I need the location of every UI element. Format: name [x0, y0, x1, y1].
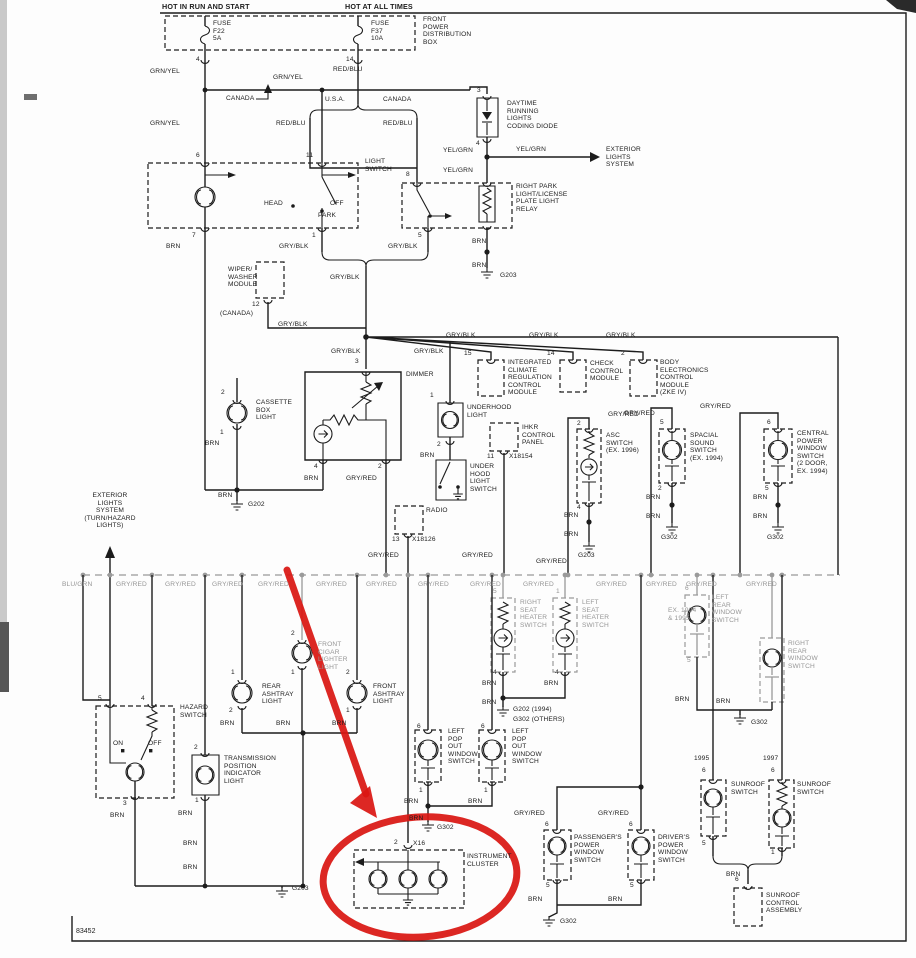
ground-g302-others: G302 (OTHERS): [513, 716, 565, 724]
bus-gry-red-6: GRY/RED: [366, 581, 397, 589]
pin-2-underhood: 2: [437, 441, 441, 449]
label-wiper-washer-module: WIPER/ WASHER MODULE: [228, 266, 258, 289]
ground-g203-bottom: G203: [292, 885, 309, 893]
wire-brn-right-seat: BRN: [482, 680, 496, 688]
pin-1-cigar: 1: [291, 669, 295, 677]
wire-brn-mid-1: BRN: [183, 840, 197, 848]
wire-gry-red-driver: GRY/RED: [598, 810, 629, 818]
wire-brn-seat: BRN: [482, 699, 496, 707]
label-icr-module: INTEGRATED CLIMATE REGULATION CONTROL MO…: [508, 359, 552, 397]
note-ex-1994-1995: EX. 1994 & 1995: [668, 607, 696, 622]
label-check-control-module: CHECK CONTROL MODULE: [590, 360, 623, 383]
wire-brn-left-pop: BRN: [404, 798, 418, 806]
pin-2-x16: 2: [394, 839, 398, 847]
pin-6-sunroof-control: 6: [735, 876, 739, 884]
label-passenger-window-switch: PASSENGER'S POWER WINDOW SWITCH: [574, 834, 622, 864]
label-left-rear-window-switch: LEFT REAR WINDOW SWITCH: [712, 594, 742, 624]
wire-brn-spacial-1: BRN: [646, 494, 660, 502]
pin-11-light-switch: 11: [306, 152, 313, 160]
connector-x18126: X18126: [412, 536, 436, 544]
wire-gry-blk-4: GRY/BLK: [331, 348, 361, 356]
wire-gry-red-spacial: GRY/RED: [624, 410, 655, 418]
pin-11-ihkr: 11: [487, 453, 494, 461]
bus-gry-red-13: GRY/RED: [746, 581, 777, 589]
pin-8-relay: 8: [406, 171, 410, 179]
pin-6-sunroof-1: 6: [702, 767, 706, 775]
wire-brn-left-rear: BRN: [675, 696, 689, 704]
pin-6-sunroof-2: 6: [771, 767, 775, 775]
year-1995: 1995: [694, 755, 709, 763]
bus-gry-red-3: GRY/RED: [212, 581, 243, 589]
pos-on-hazard: ON: [113, 740, 123, 748]
wire-gry-blk-icr: GRY/BLK: [446, 332, 476, 340]
bus-gry-red-10: GRY/RED: [596, 581, 627, 589]
wire-brn-dimmer: BRN: [304, 475, 318, 483]
label-hazard-switch: HAZARD SWITCH: [180, 704, 208, 719]
wire-grn-yel-2: GRN/YEL: [273, 74, 303, 82]
connector-x16: X16: [413, 840, 425, 848]
wire-gry-blk-trunk: GRY/BLK: [330, 274, 360, 282]
label-radio: RADIO: [426, 507, 448, 515]
pin-1-trans: 1: [195, 797, 199, 805]
label-right-park-relay: RIGHT PARK LIGHT/LICENSE PLATE LIGHT REL…: [516, 183, 567, 213]
label-front-ashtray-light: FRONT ASHTRAY LIGHT: [373, 683, 405, 706]
pin-2-spacial: 2: [658, 485, 662, 493]
label-sunroof-switch-1: SUNROOF SWITCH: [731, 781, 765, 796]
ground-g202-seat: G202 (1994): [513, 706, 552, 714]
bus-gry-red-2: GRY/RED: [165, 581, 196, 589]
ground-g302-rear: G302: [751, 719, 768, 727]
pin-13-radio: 13: [392, 536, 400, 544]
wire-gry-red-1: GRY/RED: [368, 552, 399, 560]
wire-brn-spacial-2: BRN: [646, 513, 660, 521]
pin-1-cassette: 1: [220, 429, 224, 437]
wire-yel-grn-3: YEL/GRN: [443, 167, 473, 175]
wire-brn-ashtray-2: BRN: [276, 720, 290, 728]
pin-4-right-seat: 4: [493, 669, 497, 677]
pin-5-central: 5: [765, 485, 769, 493]
wiring-diagram-page: HOT IN RUN AND STARTHOT AT ALL TIMESFUSE…: [0, 0, 916, 958]
pin-2-dimmer: 2: [378, 463, 382, 471]
label-underhood-light-switch: UNDER HOOD LIGHT SWITCH: [470, 463, 497, 493]
wire-gry-red-central: GRY/RED: [700, 403, 731, 411]
label-instrument-cluster: INSTRUMENT CLUSTER: [467, 853, 512, 868]
pin-1-front-ashtray: 1: [346, 707, 350, 715]
wire-gry-red-dimmer: GRY/RED: [346, 475, 377, 483]
wire-brn-hazard: BRN: [110, 812, 124, 820]
pin-5-spacial: 5: [660, 419, 664, 427]
label-body-electronics-module: BODY ELECTRONICS CONTROL MODULE (ZKE IV): [660, 359, 709, 397]
bus-gry-red-4: GRY/RED: [258, 581, 289, 589]
ground-g302-central: G302: [767, 534, 784, 542]
pin-4-hazard: 4: [141, 695, 145, 703]
wire-brn-light-switch: BRN: [166, 243, 180, 251]
label-rear-ashtray-light: REAR ASHTRAY LIGHT: [262, 683, 294, 706]
pin-6-right-pop: 6: [481, 723, 485, 731]
pin-2-body: 2: [621, 350, 625, 358]
region-usa: U.S.A.: [325, 96, 345, 104]
pin-4-diode: 4: [476, 140, 480, 148]
bus-gry-red-5: GRY/RED: [316, 581, 347, 589]
label-right-seat-heater: RIGHT SEAT HEATER SWITCH: [520, 599, 547, 629]
pin-1-left-pop: 1: [419, 787, 423, 795]
pin-3-dimmer: 3: [355, 358, 359, 366]
region-canada: CANADA: [383, 96, 411, 104]
wire-brn-relay-1: BRN: [472, 238, 486, 246]
wire-gry-red-2: GRY/RED: [462, 552, 493, 560]
bus-blu-grn: BLU/GRN: [62, 581, 92, 589]
label-fuse-f22: FUSE F22 5A: [213, 20, 231, 43]
pos-off: OFF: [330, 200, 344, 208]
pin-4-dimmer: 4: [314, 463, 318, 471]
label-sunroof-switch-2: SUNROOF SWITCH: [797, 781, 831, 796]
label-hot-at-all-times: HOT AT ALL TIMES: [345, 3, 413, 11]
label-fuse-f37: FUSE F37 10A: [371, 20, 389, 43]
wire-gry-blk-1: GRY/BLK: [279, 243, 309, 251]
label-exterior-lights-system: EXTERIOR LIGHTS SYSTEM: [606, 146, 641, 169]
label-asc-switch: ASC SWITCH (EX. 1996): [606, 432, 639, 455]
wire-gry-blk-check: GRY/BLK: [529, 332, 559, 340]
label-transmission-indicator: TRANSMISSION POSITION INDICATOR LIGHT: [224, 755, 276, 785]
pin-2-rear-ashtray: 2: [229, 707, 233, 715]
wire-yel-grn-2: YEL/GRN: [516, 146, 546, 154]
pos-head: HEAD: [264, 200, 283, 208]
wire-yel-grn-1: YEL/GRN: [443, 147, 473, 155]
bus-gry-red-7: GRY/RED: [418, 581, 449, 589]
label-driver-window-switch: DRIVER'S POWER WINDOW SWITCH: [658, 834, 690, 864]
wire-brn-cassette: BRN: [205, 440, 219, 448]
pin-2-front-ashtray: 2: [346, 669, 350, 677]
label-central-power-window-switch: CENTRAL POWER WINDOW SWITCH (2 DOOR, EX.…: [797, 430, 829, 476]
pin-15-icr: 15: [464, 350, 472, 358]
wire-gry-red-passenger: GRY/RED: [514, 810, 545, 818]
label-left-seat-heater: LEFT SEAT HEATER SWITCH: [582, 599, 609, 629]
label-underhood-light: UNDERHOOD LIGHT: [467, 404, 512, 419]
label-right-rear-window-switch: RIGHT REAR WINDOW SWITCH: [788, 640, 818, 670]
pin-5-hazard: 5: [98, 695, 102, 703]
tag-canada-arrow: CANADA: [226, 95, 254, 103]
wire-gry-blk-body: GRY/BLK: [606, 332, 636, 340]
wire-gry-blk-2: GRY/BLK: [388, 243, 418, 251]
bus-gry-red-12: GRY/RED: [686, 581, 717, 589]
label-exterior-lights-turn-hazard: EXTERIOR LIGHTS SYSTEM (TURN/HAZARD LIGH…: [84, 492, 135, 530]
pin-5-driver: 5: [630, 882, 634, 890]
wire-gry-blk-5: GRY/BLK: [414, 348, 444, 356]
pin-6-left-rear-window: 6: [685, 585, 689, 593]
wire-brn-ashtray-3: BRN: [332, 720, 346, 728]
label-ihkr-control-panel: IHKR CONTROL PANEL: [522, 424, 555, 447]
pin-2-cassette: 2: [221, 389, 225, 397]
pin-4-fuse: 4: [196, 56, 200, 64]
ground-g203-relay: G203: [500, 272, 517, 280]
wire-brn-asc-1: BRN: [564, 512, 578, 520]
pin-14-fuse: 14: [346, 56, 354, 64]
wire-brn-underhood: BRN: [420, 452, 434, 460]
pin-6-light-switch: 6: [196, 152, 200, 160]
ground-g302-window: G302: [560, 918, 577, 926]
pin-2-asc: 2: [577, 420, 581, 428]
wire-brn-mid-2: BRN: [183, 864, 197, 872]
note-canada: (CANADA): [220, 310, 253, 318]
wire-red-blu-usa: RED/BLU: [276, 120, 306, 128]
wire-brn-asc-2: BRN: [564, 531, 578, 539]
pin-5-right-seat: 5: [493, 588, 497, 596]
ground-g302-spacial: G302: [661, 534, 678, 542]
wire-gry-red-asc-riser: GRY/RED: [536, 558, 567, 566]
label-front-power-distribution-box: FRONT POWER DISTRIBUTION BOX: [423, 16, 471, 46]
bus-gry-red-1: GRY/RED: [116, 581, 147, 589]
label-front-cigar-lighter-light: FRONT CIGAR LIGHTER LIGHT: [318, 641, 348, 671]
label-hot-in-run-and-start: HOT IN RUN AND START: [162, 3, 250, 11]
label-daytime-running-lights: DAYTIME RUNNING LIGHTS CODING DIODE: [507, 100, 558, 130]
pin-1-left-seat: 1: [556, 588, 560, 596]
wire-brn-central-2: BRN: [753, 513, 767, 521]
label-left-pop-out-switch: LEFT POP OUT WINDOW SWITCH: [448, 728, 478, 766]
pos-park: PARK: [318, 212, 336, 220]
label-spacial-sound-switch: SPACIAL SOUND SWITCH (EX. 1994): [690, 432, 723, 462]
year-1997: 1997: [763, 755, 778, 763]
pin-1-rear-ashtray: 1: [231, 669, 235, 677]
wire-grn-yel-3: GRN/YEL: [150, 120, 180, 128]
pin-1-underhood: 1: [430, 392, 434, 400]
pin-5-passenger: 5: [546, 882, 550, 890]
pin-6-driver: 6: [629, 821, 633, 829]
wire-brn-central-1: BRN: [753, 494, 767, 502]
wire-brn-ashtray-1: BRN: [220, 720, 234, 728]
label-sunroof-control-assembly: SUNROOF CONTROL ASSEMBLY: [766, 892, 802, 915]
wire-brn-right-rear: BRN: [716, 698, 730, 706]
pin-1-right-pop: 1: [484, 787, 488, 795]
wire-brn-driver: BRN: [608, 896, 622, 904]
pin-2-trans: 2: [194, 744, 198, 752]
wire-brn-pop: BRN: [409, 815, 423, 823]
wire-gry-blk-3: GRY/BLK: [278, 321, 308, 329]
pin-12-wiper: 12: [252, 301, 260, 309]
ground-g202: G202: [248, 501, 265, 509]
pin-7-light-switch: 7: [192, 232, 196, 240]
pin-5-relay: 5: [418, 232, 422, 240]
pin-1-light-switch: 1: [312, 232, 316, 240]
wire-brn-passenger: BRN: [528, 896, 542, 904]
wire-brn-trans: BRN: [178, 810, 192, 818]
pin-3-diode: 3: [477, 87, 481, 95]
ground-g302-pop: G302: [437, 824, 454, 832]
pin-1-sunroof-2: 1: [771, 849, 775, 857]
label-dimmer: DIMMER: [406, 371, 434, 379]
diagram-labels: HOT IN RUN AND STARTHOT AT ALL TIMESFUSE…: [0, 0, 916, 958]
wire-grn-yel-1: GRN/YEL: [150, 68, 180, 76]
pin-2-cigar: 2: [291, 630, 295, 638]
pos-off-hazard: OFF: [148, 740, 162, 748]
wire-brn-g202: BRN: [218, 492, 232, 500]
connector-x18154: X18154: [509, 453, 533, 461]
pin-6-passenger: 6: [545, 821, 549, 829]
ground-g203-asc: G203: [578, 552, 595, 560]
figure-number: 83452: [76, 928, 95, 935]
wire-red-blu-1: RED/BLU: [333, 66, 363, 74]
label-cassette-box-light: CASSETTE BOX LIGHT: [256, 399, 292, 422]
pin-14-check: 14: [547, 350, 555, 358]
pin-4-asc: 4: [577, 504, 581, 512]
pin-5-sunroof-1: 5: [702, 840, 706, 848]
bus-gry-red-9: GRY/RED: [523, 581, 554, 589]
bus-gry-red-11: GRY/RED: [646, 581, 677, 589]
wire-brn-right-pop: BRN: [468, 798, 482, 806]
pin-6-left-pop: 6: [417, 723, 421, 731]
label-left-pop-out-switch-2: LEFT POP OUT WINDOW SWITCH: [512, 728, 542, 766]
label-light-switch: LIGHT SWITCH: [365, 158, 392, 173]
wire-brn-left-seat: BRN: [544, 680, 558, 688]
pin-6-central: 6: [767, 419, 771, 427]
pin-3-hazard: 3: [123, 800, 127, 808]
wire-red-blu-canada: RED/BLU: [383, 120, 413, 128]
pin-4-left-seat: 4: [555, 669, 559, 677]
pin-5-left-rear-window: 5: [687, 657, 691, 665]
wire-brn-relay-2: BRN: [472, 262, 486, 270]
